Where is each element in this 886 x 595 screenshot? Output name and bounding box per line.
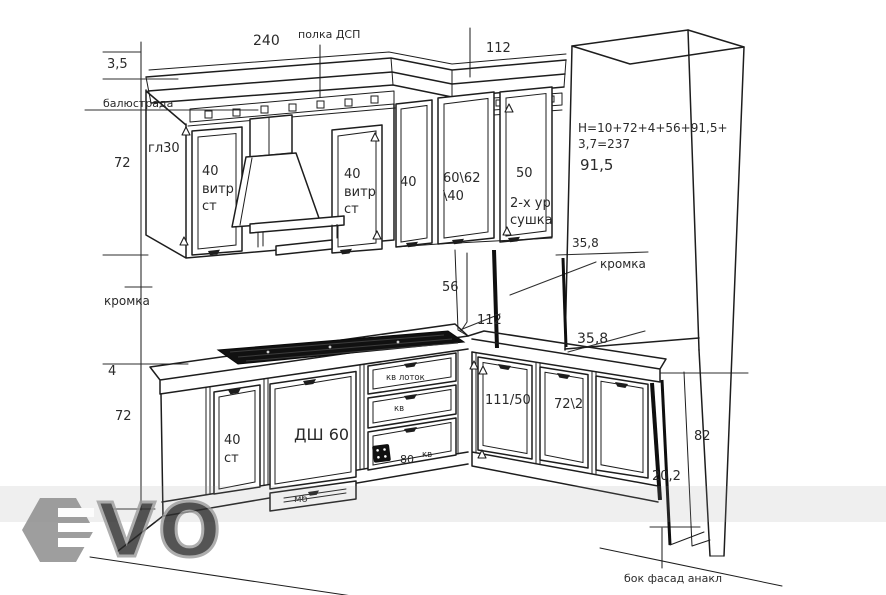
dishwasher-label: ДШ 60 [294, 425, 349, 444]
upper-glass-left-label-2: витр [202, 182, 234, 197]
dim-72-upper-label: 72 [114, 156, 131, 171]
dim-35-8-top-label: 35,8 [572, 236, 599, 250]
upper-corner-label-2: \40 [443, 189, 464, 204]
upper-glass-right-label-1: 40 [344, 167, 361, 182]
dim-4-label: 4 [108, 364, 116, 379]
upper-door-40 [396, 100, 432, 247]
base-door-72-2 [540, 367, 588, 468]
upper-dryer-label-3: сушка [510, 213, 553, 228]
tall-cabinet [455, 30, 744, 556]
range-hood [232, 115, 344, 255]
base-72-2-label: 72\2 [554, 397, 583, 412]
burner-icon [372, 444, 391, 463]
dim-112-mid-label: 112 [477, 313, 502, 328]
upper-corner-label-1: 60\62 [443, 171, 480, 186]
drawer-top-label: кв лоток [386, 373, 425, 383]
side-facade-note: бок фасад анакл [624, 572, 722, 585]
kitchen-sketch: 240 полка ДСП 112 3,5 балюстрада гл30 72… [0, 0, 886, 595]
dim-3-5-label: 3,5 [107, 57, 128, 72]
edge-note-right: кромка [600, 257, 646, 271]
watermark-e-bar [58, 523, 94, 532]
watermark-letters: VO [98, 488, 225, 574]
upper-glass-left-label-3: ст [202, 199, 217, 214]
shelf-note: полка ДСП [298, 28, 360, 41]
upper-glass-left-label-1: 40 [202, 164, 219, 179]
balustrade-note: балюстрада [103, 97, 173, 110]
edge-note-left: кромка [104, 294, 150, 308]
base-door-right-3 [596, 376, 648, 478]
height-formula-2: 3,7=237 [578, 137, 630, 151]
upper-cabinets [146, 52, 566, 258]
edge-banding-tall [563, 258, 566, 347]
dim-82-label: 82 [694, 429, 711, 444]
upper-dryer-label-2: 2-х ур [510, 196, 551, 211]
height-formula-1: Н=10+72+4+56+91,5+ [578, 121, 728, 135]
upper-glass-right-label-3: ст [344, 202, 359, 217]
base-111-50-label: 111/50 [485, 393, 531, 408]
dim-35-8-bottom-label: 35,8 [577, 331, 608, 347]
dim-56-label: 56 [442, 280, 459, 295]
watermark-e-bar [58, 538, 94, 547]
watermark: VO [0, 486, 886, 574]
dim-112-top-label: 112 [486, 41, 511, 56]
upper-40-label: 40 [400, 175, 417, 190]
watermark-e-bar [58, 508, 94, 517]
drawer-bottom-num: 80 [400, 453, 414, 466]
dim-91-5-label: 91,5 [580, 156, 613, 174]
drawer-bottom-kv: кв [422, 450, 432, 460]
dim-72-base-label: 72 [115, 409, 132, 424]
drawer-middle-label: кв [394, 404, 404, 414]
upper-dryer-label-1: 50 [516, 166, 533, 181]
upper-glass-right-label-2: витр [344, 185, 376, 200]
depth-note: гл30 [148, 141, 180, 156]
dim-20-2-label: 20,2 [652, 469, 681, 484]
base-glass-label-2: ст [224, 451, 239, 466]
tall-cabinet-top [572, 30, 744, 64]
base-glass-label-1: 40 [224, 433, 241, 448]
upper-door-corner [438, 92, 494, 244]
dim-240-label: 240 [253, 33, 280, 49]
